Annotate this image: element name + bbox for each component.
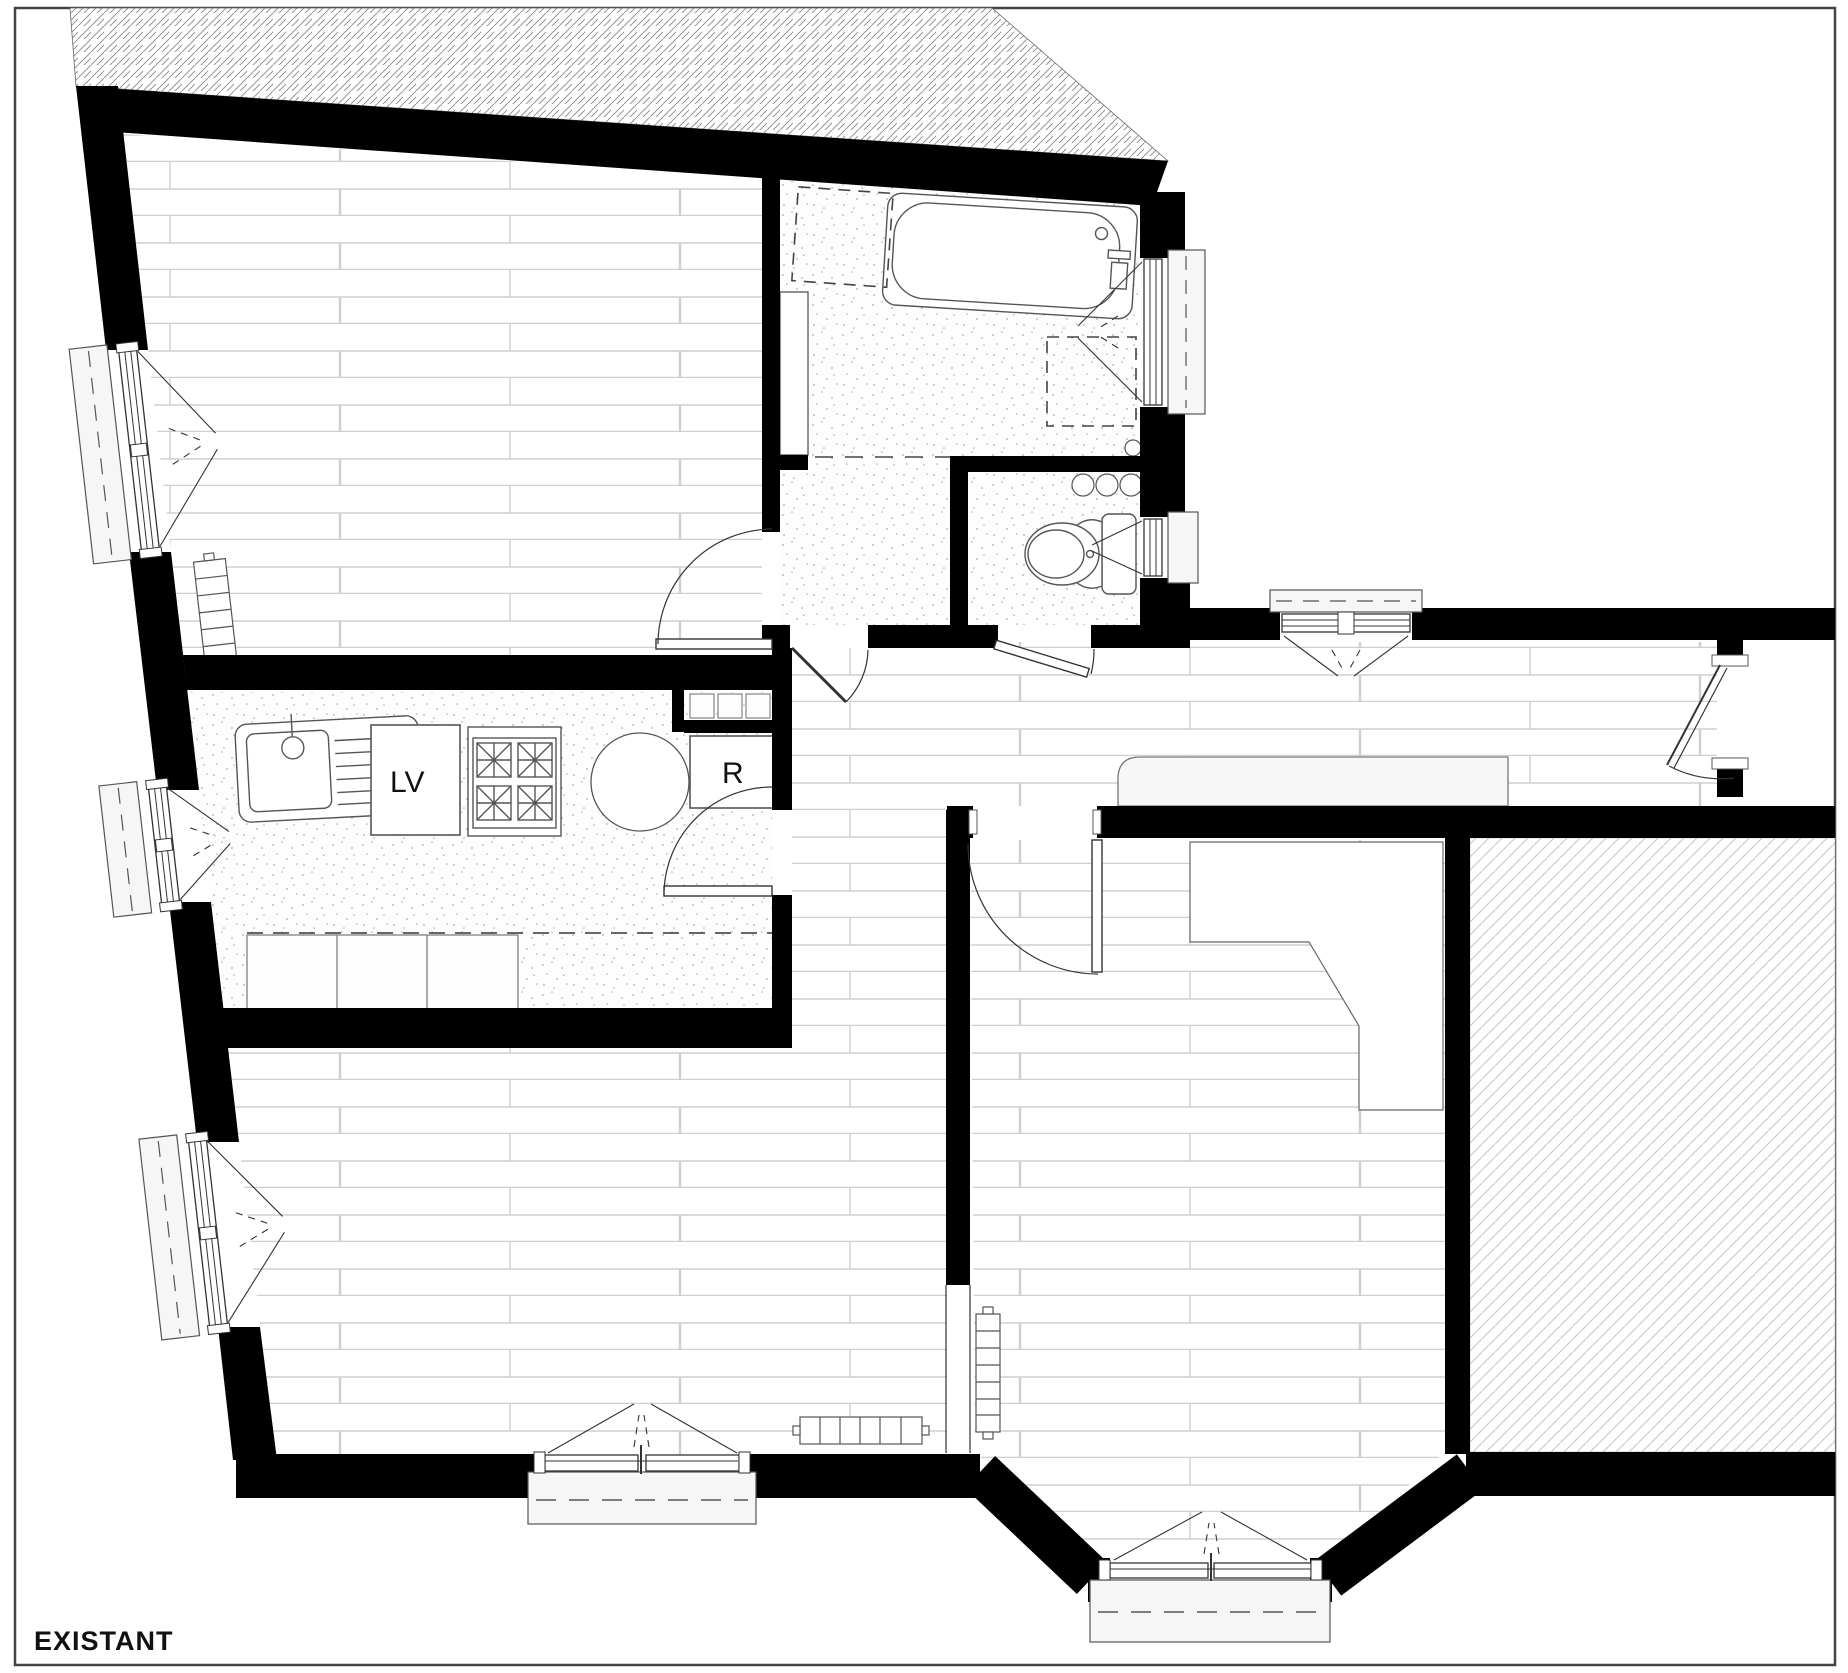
dishwasher-label: LV <box>390 766 424 799</box>
living-floor <box>228 1048 947 1455</box>
floor-plan-page: LV R <box>0 0 1848 1673</box>
kitchen-south-wall <box>196 1008 792 1048</box>
bathroom-wall-stub <box>780 455 808 470</box>
wc-west-wall <box>950 456 968 648</box>
living-bedroom-divider-wall <box>946 810 970 1285</box>
storage-room-floor <box>1470 838 1835 1452</box>
entry-sill-top <box>1712 655 1748 666</box>
corridor-north-wall <box>1150 608 1835 640</box>
corridor-wardrobe <box>1118 757 1508 806</box>
sejour-bathroom-divider-wall <box>762 170 780 532</box>
bathtub-icon <box>882 192 1138 319</box>
fridge-label: R <box>722 757 744 790</box>
round-table-icon <box>591 733 689 831</box>
hall-strip-floor <box>792 648 950 1048</box>
entry-sill-bottom <box>1712 758 1748 769</box>
kitchen-north-wall <box>183 655 792 690</box>
radiator-bedroom <box>976 1307 1000 1439</box>
floor-plan-svg: LV R <box>0 0 1848 1673</box>
plan-title: EXISTANT <box>34 1626 174 1656</box>
tall-cupboard <box>780 292 808 455</box>
storage-room-west-wall <box>1445 838 1470 1454</box>
stove-icon <box>468 727 561 836</box>
radiator-living <box>793 1417 929 1444</box>
